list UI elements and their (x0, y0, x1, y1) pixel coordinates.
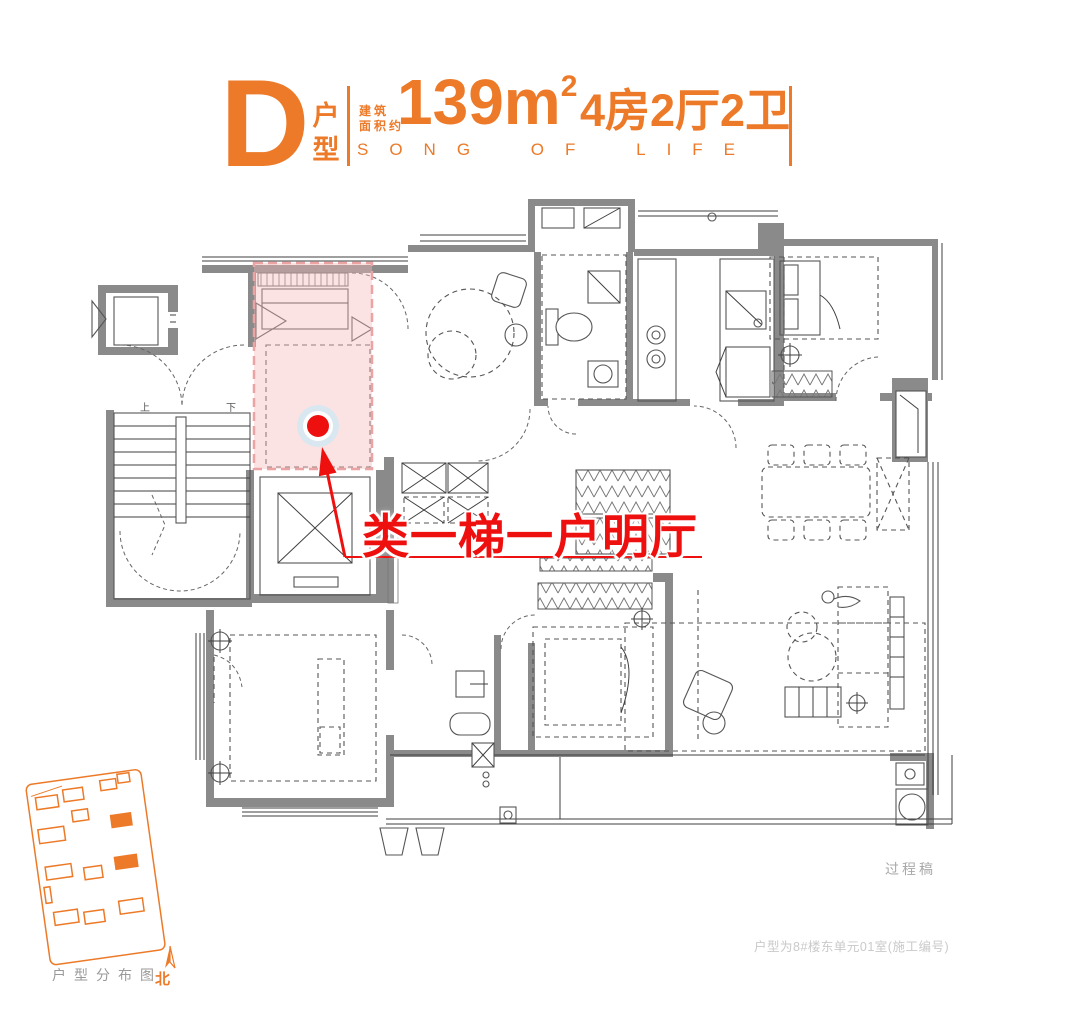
site-map-caption: 户型分布图 (52, 965, 162, 985)
north-arrow-icon (165, 946, 175, 968)
master-bathroom (402, 635, 494, 787)
stairwell (114, 345, 250, 599)
study-room (352, 271, 528, 379)
site-map (22, 760, 197, 995)
area-value: 139m2 (397, 70, 577, 134)
elevator (260, 477, 370, 595)
header-divider-left (347, 86, 350, 166)
unit-type-suffix-char1: 户 (311, 99, 341, 133)
header-divider-right (789, 86, 792, 166)
area-number: 139m (397, 66, 561, 138)
stair-down-label: 下 (226, 399, 236, 414)
bedroom-bottom-middle (501, 558, 653, 737)
stair-up-label: 上 (140, 399, 150, 414)
unit-number-note: 户型为8#楼东单元01室(施工编号) (754, 936, 949, 955)
unit-type-letter: D (220, 62, 310, 186)
area-superscript: 2 (561, 70, 578, 103)
draft-watermark: 过程稿 (885, 859, 936, 879)
north-label: 北 (155, 968, 170, 989)
site-map-buildings (25, 769, 165, 965)
bedroom-top-right (770, 257, 880, 401)
unit-type-suffix: 户 型 (311, 99, 341, 167)
annotation-text: 类一梯一户明厅 (362, 498, 698, 567)
laundry-nook (500, 763, 928, 825)
dining-area (762, 391, 926, 540)
slogan-text: SONG OF LIFE (357, 140, 756, 160)
floorplan-page: D 户 型 建筑 面积约 139m2 4房2厅2卫 SONG OF LIFE (0, 0, 1080, 1033)
master-bedroom (208, 629, 376, 785)
kitchen (638, 259, 774, 448)
bathroom-main (542, 255, 626, 434)
unit-type-suffix-char2: 型 (311, 133, 341, 167)
marker-dot (307, 415, 329, 437)
room-count-text: 4房2厅2卫 (580, 88, 790, 133)
